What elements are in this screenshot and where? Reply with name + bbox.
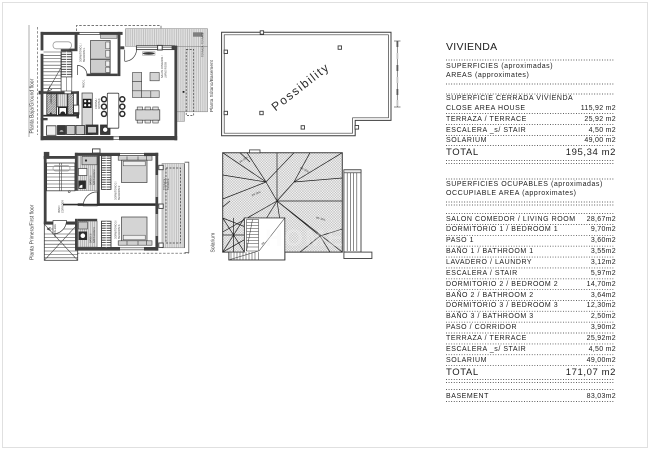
svg-text:BATHROOM 3: BATHROOM 3	[93, 227, 96, 243]
svg-text:BEDROOM 1: BEDROOM 1	[83, 47, 86, 62]
svg-text:BEDROOM 3: BEDROOM 3	[118, 224, 121, 239]
svg-text:Possibility: Possibility	[269, 60, 333, 114]
svg-text:BATHROOM 2: BATHROOM 2	[93, 169, 96, 185]
svg-text:HOME: HOME	[265, 225, 345, 252]
svg-text:KITCHEN: KITCHEN	[98, 98, 101, 109]
svg-text:BEDROOM 2: BEDROOM 2	[118, 185, 121, 200]
svg-text:LAVADERO: LAVADERO	[50, 91, 53, 104]
svg-text:TERRACE: TERRACE	[167, 178, 170, 190]
svg-text:LIVING ROOM: LIVING ROOM	[165, 62, 168, 78]
svg-text:Solarium: Solarium	[211, 233, 217, 253]
svg-text:PASO 1: PASO 1	[83, 79, 86, 88]
svg-text:Planta Sótano/Basement: Planta Sótano/Basement	[209, 59, 214, 112]
svg-text:Planta Baja/Ground floor: Planta Baja/Ground floor	[30, 78, 36, 133]
svg-text:TERRAZA / TERRACE: TERRAZA / TERRACE	[202, 32, 205, 57]
svg-text:CORRIDOR: CORRIDOR	[62, 200, 65, 213]
svg-text:ESCALERA: ESCALERA	[54, 224, 57, 237]
svg-text:Planta Primera/First floor: Planta Primera/First floor	[30, 204, 36, 260]
